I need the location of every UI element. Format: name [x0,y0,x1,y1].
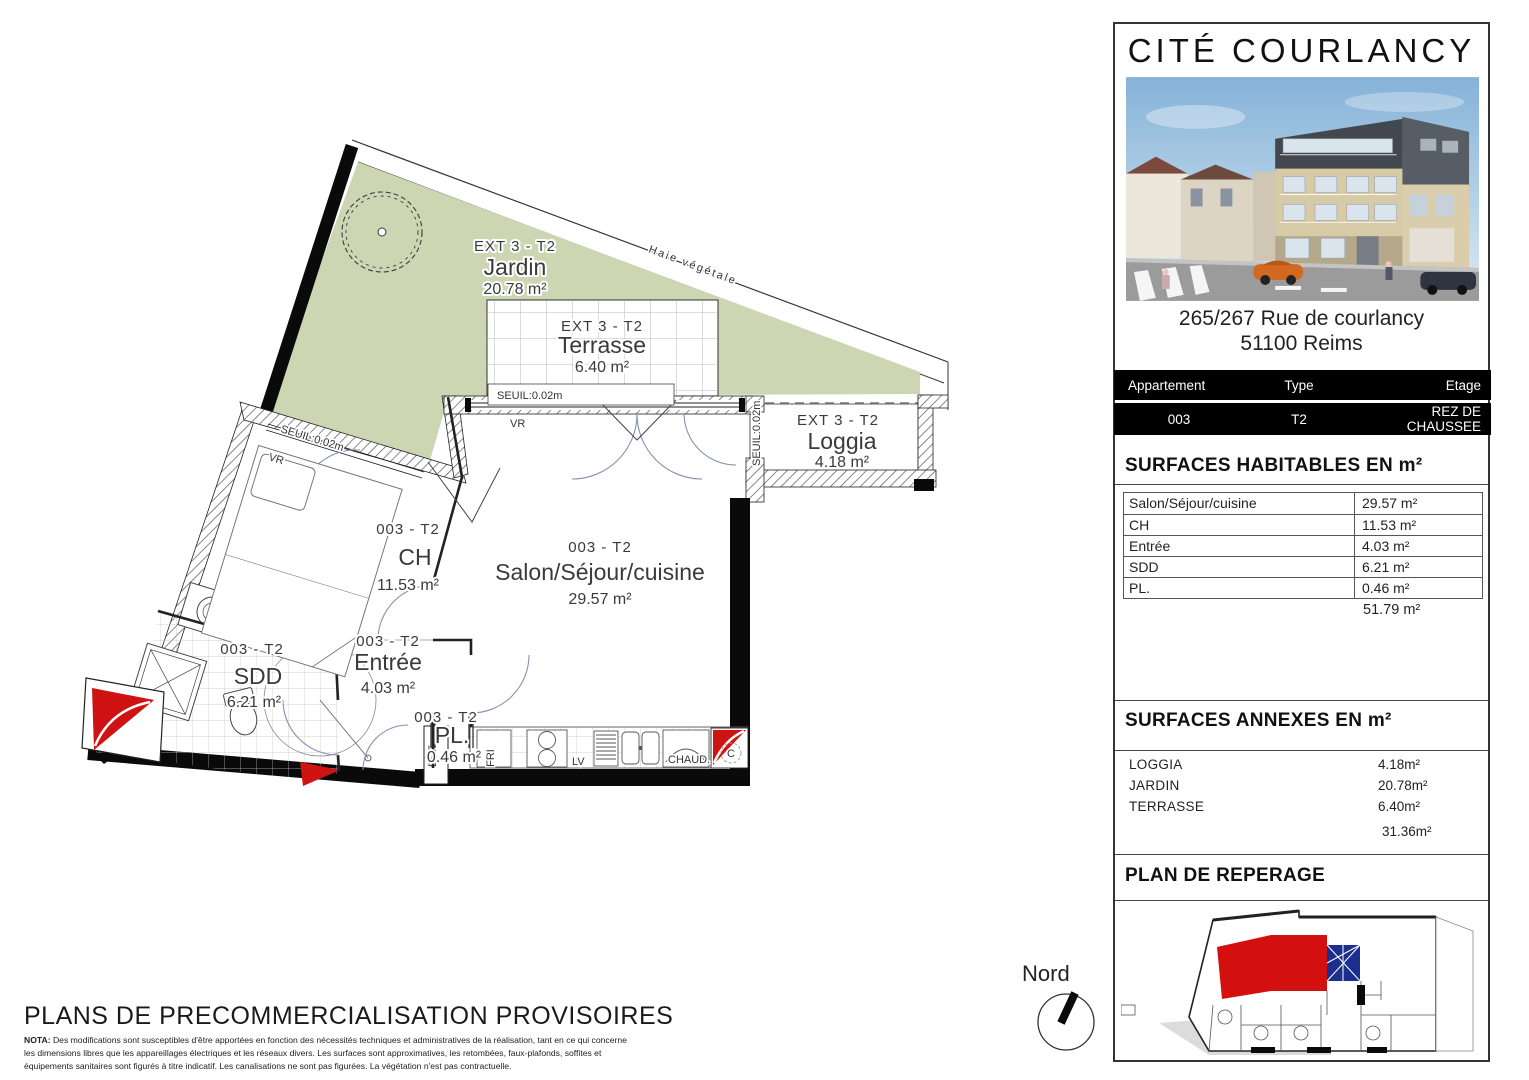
svg-text:11.53 m²: 11.53 m² [377,577,440,594]
divider [1115,484,1488,485]
svg-text:SDD: SDD [234,663,283,689]
divider [1115,700,1488,701]
svg-text:29.57 m²: 29.57 m² [568,591,632,608]
svg-text:SEUIL:0.02m: SEUIL:0.02m [751,401,763,466]
svg-text:Entrée: Entrée [354,649,422,675]
value-type: T2 [1244,412,1354,427]
project-title: CITÉ COURLANCY [1115,32,1488,70]
table-row: JARDIN 20.78m² [1125,778,1485,799]
annexes-total: 31.36m² [1382,824,1432,839]
svg-text:EXT 3 - T2: EXT 3 - T2 [474,238,556,255]
floorplan: Haie végétale [0,0,1100,1080]
divider [1115,750,1488,751]
unit-highlight [1217,935,1327,999]
key-plan-thumbnail [1121,905,1486,1060]
value-appartement: 003 [1114,412,1244,427]
page: Haie végétale [0,0,1529,1080]
c-label: C [727,748,735,760]
value-etage: REZ DE CHAUSSEE [1354,404,1491,434]
footer-title: PLANS DE PRECOMMERCIALISATION PROVISOIRE… [24,1002,684,1031]
col-etage: Etage [1354,378,1491,393]
svg-text:6.21 m²: 6.21 m² [227,694,282,711]
svg-text:PL.: PL. [435,722,470,748]
chaud-label: CHAUD. [668,754,710,766]
svg-text:Terrasse: Terrasse [558,332,646,358]
svg-text:20.78 m²: 20.78 m² [483,281,547,298]
svg-text:0.46 m²: 0.46 m² [427,749,482,766]
compass-dial [1038,994,1094,1050]
building-render [1126,76,1479,302]
address-line2: 51100 Reims [1115,331,1488,356]
svg-text:EXT 3 - T2: EXT 3 - T2 [797,412,879,429]
svg-text:VR: VR [510,418,525,430]
table-row: PL. 0.46 m² [1124,577,1482,598]
svg-text:SEUIL:0.02m: SEUIL:0.02m [497,390,562,402]
lv-label: LV [572,756,585,768]
info-table-header: Appartement Type Etage [1114,370,1491,400]
svg-text:003 - T2: 003 - T2 [220,641,284,658]
footer-nota: NOTA: Des modifications sont susceptible… [24,1034,632,1073]
reperage-title: PLAN DE REPERAGE [1125,865,1325,887]
info-panel: CITÉ COURLANCY [1113,22,1490,1062]
room-label-entree: 003 - T2 Entrée 4.03 m² [354,633,422,697]
shaft-sdd [82,678,164,762]
table-row: SDD 6.21 m² [1124,556,1482,577]
nota-text: Des modifications sont susceptibles d'êt… [24,1035,627,1071]
footer: PLANS DE PRECOMMERCIALISATION PROVISOIRE… [24,1002,684,1073]
table-row: LOGGIA 4.18m² [1125,757,1485,778]
svg-text:003 - T2: 003 - T2 [376,521,440,538]
fri-label: FRI [485,749,497,767]
divider [1115,854,1488,855]
habitables-table: Salon/Séjour/cuisine 29.57 m² CH 11.53 m… [1123,492,1483,599]
table-row: CH 11.53 m² [1124,514,1482,535]
annexes-title: SURFACES ANNEXES EN m² [1125,710,1392,732]
habitables-title: SURFACES HABITABLES EN m² [1125,455,1422,477]
svg-text:003 - T2: 003 - T2 [356,633,420,650]
svg-text:003 - T2: 003 - T2 [568,539,632,556]
table-row: Salon/Séjour/cuisine 29.57 m² [1124,493,1482,514]
north-compass: Nord [1002,956,1122,1071]
address-line1: 265/267 Rue de courlancy [1115,306,1488,331]
annexes-table: LOGGIA 4.18m² JARDIN 20.78m² TERRASSE 6.… [1125,757,1485,820]
compass-label: Nord [1022,961,1070,986]
nota-label: NOTA: [24,1035,51,1045]
info-table-row: 003 T2 REZ DE CHAUSSEE [1114,403,1491,435]
table-row: TERRASSE 6.40m² [1125,799,1485,820]
col-type: Type [1244,378,1354,393]
svg-text:CH: CH [398,544,431,570]
col-appartement: Appartement [1114,378,1244,393]
svg-text:Loggia: Loggia [807,428,876,454]
room-label-jardin: EXT 3 - T2 Jardin 20.78 m² [474,238,556,298]
habitables-total: 51.79 m² [1363,602,1420,618]
apartment-info-table: Appartement Type Etage 003 T2 REZ DE CHA… [1114,370,1491,435]
svg-text:4.03 m²: 4.03 m² [361,680,416,697]
divider [1115,900,1488,901]
svg-text:Salon/Séjour/cuisine: Salon/Séjour/cuisine [495,559,705,585]
svg-text:6.40 m²: 6.40 m² [575,359,630,376]
svg-text:Jardin: Jardin [484,254,547,280]
table-row: Entrée 4.03 m² [1124,535,1482,556]
svg-text:4.18 m²: 4.18 m² [815,454,870,471]
address: 265/267 Rue de courlancy 51100 Reims [1115,306,1488,356]
